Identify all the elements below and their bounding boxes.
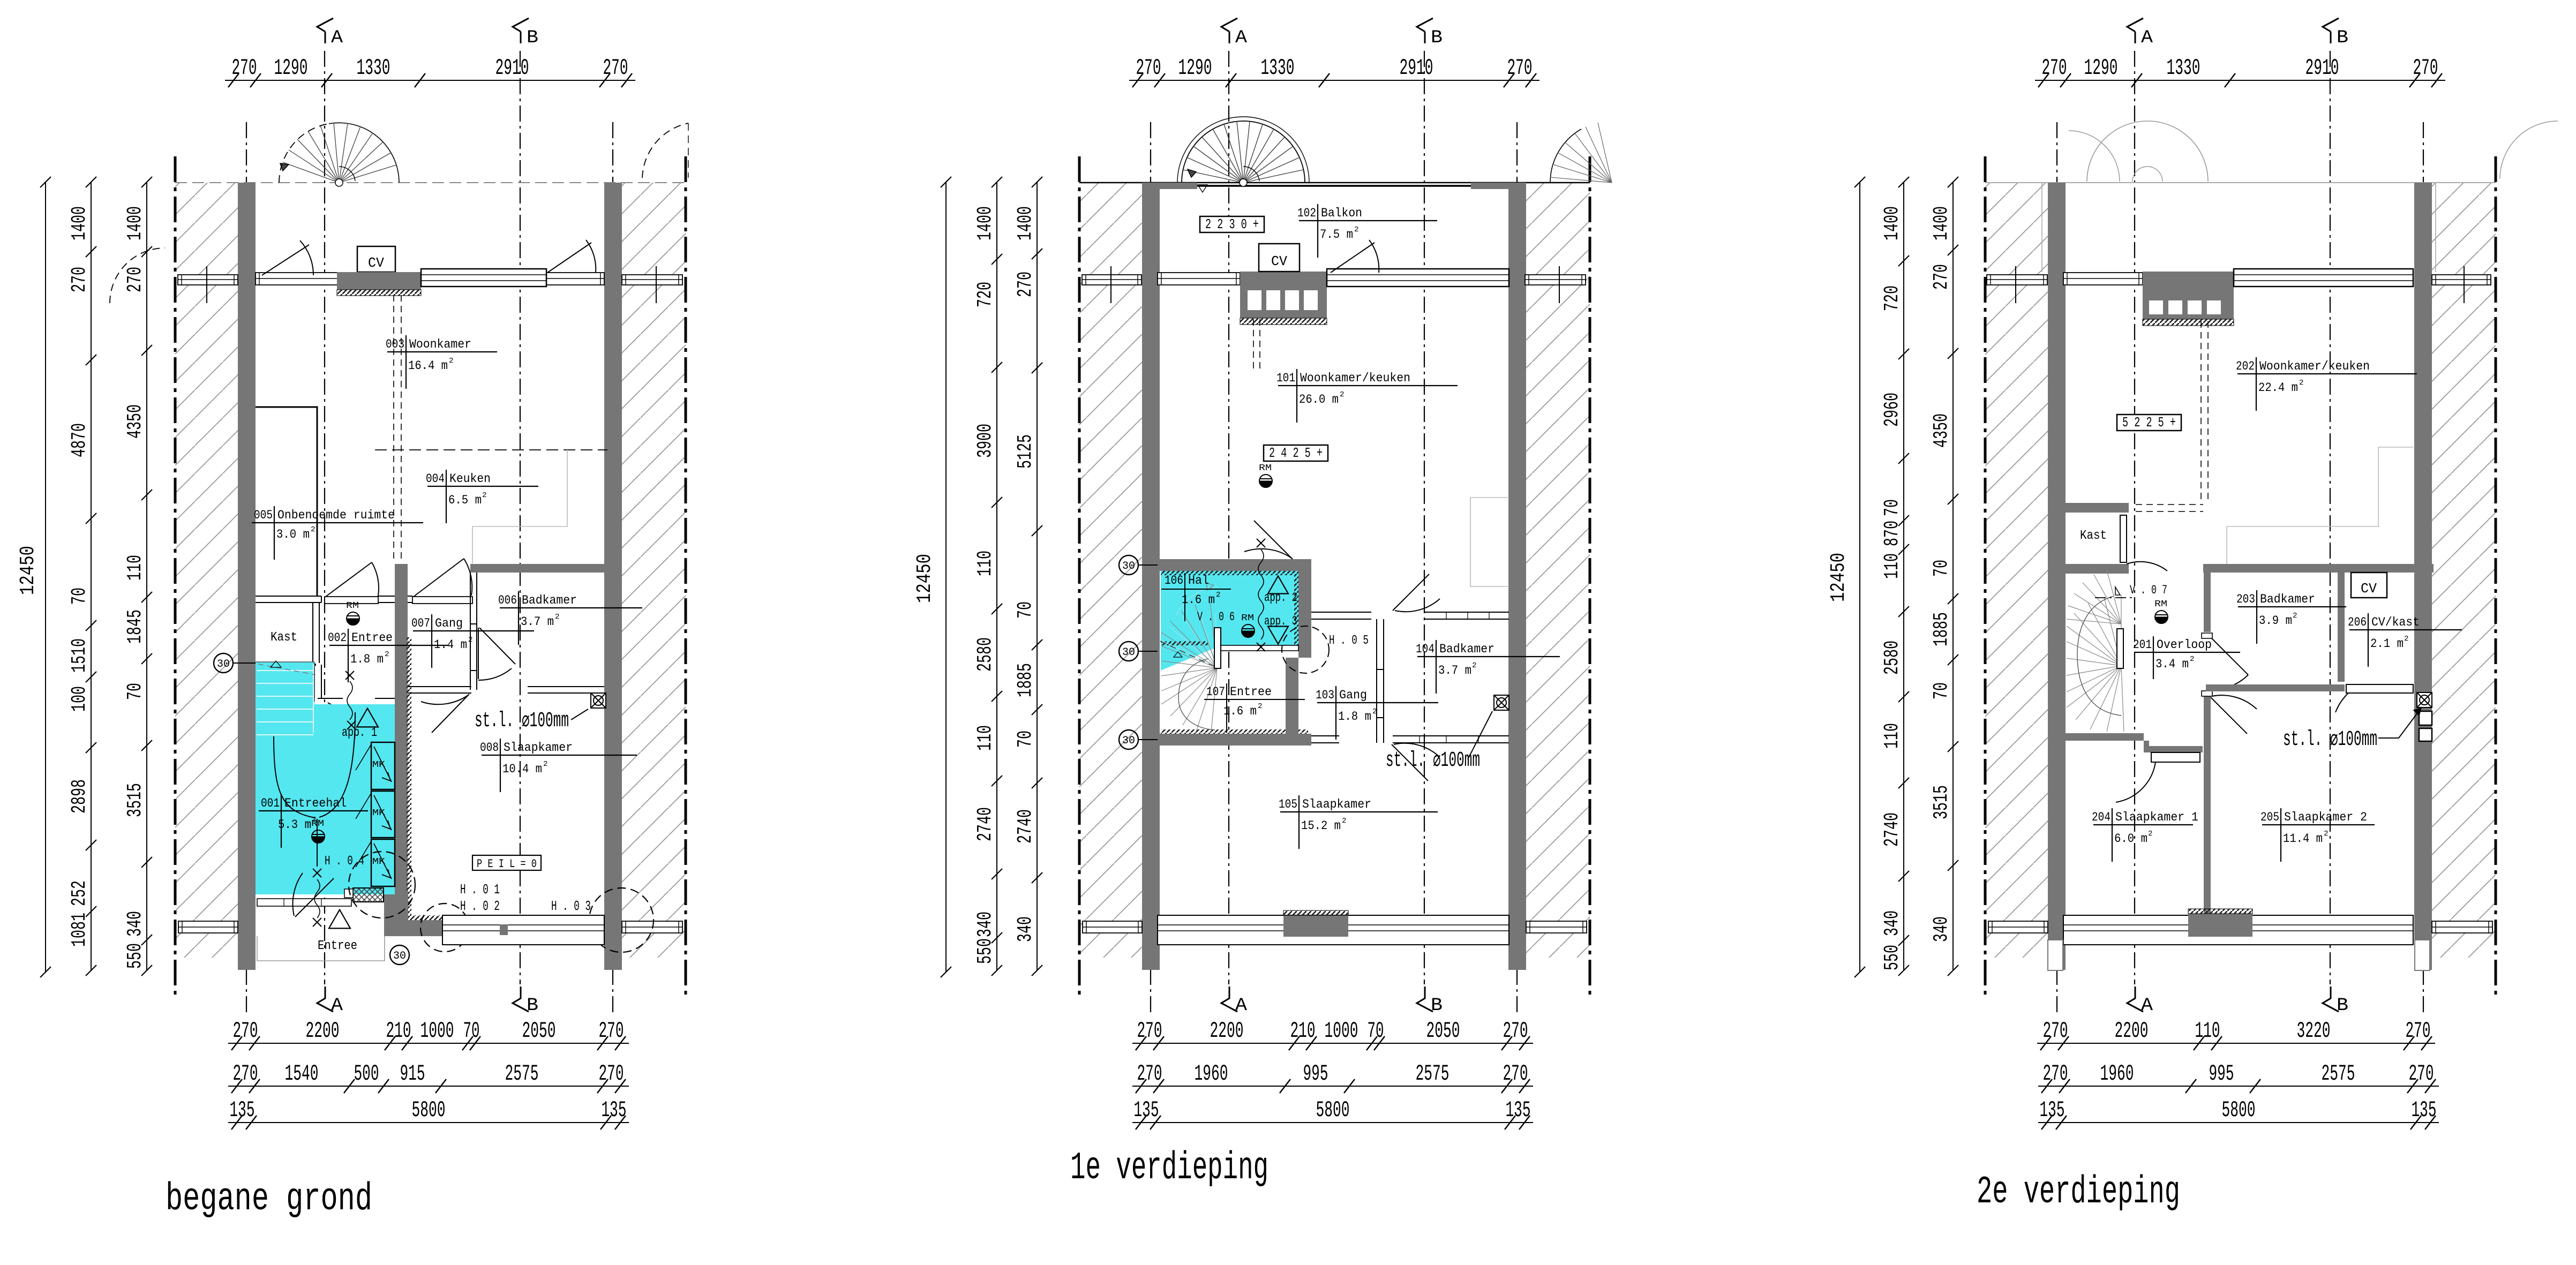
svg-text:2.1 m: 2.1 m	[2370, 637, 2404, 651]
svg-text:Entreehal: Entreehal	[284, 796, 347, 810]
svg-text:CV/kast: CV/kast	[2371, 615, 2420, 629]
svg-text:Kast: Kast	[271, 630, 297, 645]
svg-text:100: 100	[68, 686, 91, 712]
svg-text:3515: 3515	[1930, 785, 1953, 819]
svg-text:2200: 2200	[1210, 1018, 1244, 1044]
svg-text:2575: 2575	[1416, 1061, 1450, 1087]
svg-text:915: 915	[400, 1061, 425, 1087]
svg-text:26.0 m: 26.0 m	[1299, 393, 1339, 406]
svg-text:1510: 1510	[68, 638, 91, 673]
svg-text:135: 135	[1134, 1097, 1159, 1123]
svg-text:Gang: Gang	[435, 616, 463, 630]
svg-text:1330: 1330	[1261, 55, 1295, 81]
svg-text:2: 2	[468, 636, 473, 644]
svg-text:2: 2	[543, 760, 548, 769]
svg-text:995: 995	[1303, 1061, 1328, 1087]
svg-text:006: 006	[498, 593, 517, 607]
svg-text:H . 0 3: H . 0 3	[551, 898, 591, 914]
svg-text:720: 720	[1881, 285, 1904, 311]
svg-text:A: A	[331, 996, 343, 1016]
svg-text:RM: RM	[346, 601, 359, 611]
svg-text:2: 2	[1340, 390, 1345, 399]
svg-text:5 2 2 5 +: 5 2 2 5 +	[2122, 415, 2176, 431]
svg-text:Hal: Hal	[1188, 574, 1209, 588]
svg-text:007: 007	[411, 616, 430, 630]
svg-text:1540: 1540	[285, 1061, 319, 1087]
svg-text:1845: 1845	[124, 609, 147, 644]
svg-text:110: 110	[2195, 1018, 2220, 1044]
svg-text:2: 2	[1258, 702, 1263, 711]
svg-text:V . 0 6: V . 0 6	[1197, 610, 1235, 624]
svg-text:1960: 1960	[2100, 1061, 2134, 1087]
svg-text:202: 202	[2236, 359, 2255, 373]
svg-text:270: 270	[124, 267, 147, 292]
svg-text:B: B	[1431, 996, 1443, 1016]
svg-text:2: 2	[2190, 655, 2195, 664]
svg-text:B: B	[527, 28, 538, 48]
svg-text:Slaapkamer 2: Slaapkamer 2	[2284, 810, 2367, 824]
svg-text:RM: RM	[311, 819, 324, 829]
svg-text:Keuken: Keuken	[449, 472, 491, 486]
svg-text:270: 270	[232, 55, 257, 81]
svg-text:2: 2	[1372, 707, 1377, 716]
svg-text:10.4 m: 10.4 m	[502, 762, 542, 776]
svg-text:270: 270	[2406, 1018, 2431, 1044]
svg-text:270: 270	[233, 1018, 258, 1044]
svg-text:Gang: Gang	[1339, 688, 1367, 702]
svg-text:110: 110	[1881, 553, 1904, 579]
svg-text:340: 340	[1014, 916, 1037, 942]
svg-text:2910: 2910	[1400, 55, 1433, 81]
svg-text:30: 30	[1122, 560, 1135, 573]
svg-text:4350: 4350	[124, 404, 147, 439]
svg-text:70: 70	[1881, 499, 1904, 516]
svg-text:2: 2	[311, 525, 316, 534]
svg-text:3.7 m: 3.7 m	[521, 615, 554, 629]
svg-text:210: 210	[386, 1018, 411, 1044]
svg-text:2: 2	[385, 650, 389, 659]
svg-text:Kast: Kast	[2080, 529, 2107, 543]
svg-text:270: 270	[603, 55, 628, 81]
svg-text:5800: 5800	[1316, 1097, 1350, 1123]
svg-text:870: 870	[1881, 521, 1904, 546]
svg-text:70: 70	[463, 1018, 480, 1044]
svg-text:2960: 2960	[1881, 393, 1904, 427]
svg-text:270: 270	[1136, 55, 1161, 81]
svg-text:Onbenoemde ruimte: Onbenoemde ruimte	[277, 508, 395, 522]
svg-text:2 2 3 0 +: 2 2 3 0 +	[1205, 216, 1259, 232]
svg-text:5800: 5800	[412, 1097, 446, 1123]
svg-text:2: 2	[449, 357, 454, 365]
svg-text:270: 270	[2042, 55, 2067, 81]
svg-text:Woonkamer/keuken: Woonkamer/keuken	[2259, 359, 2370, 373]
svg-text:Woonkamer: Woonkamer	[409, 337, 471, 351]
svg-text:270: 270	[1507, 55, 1533, 81]
svg-text:005: 005	[254, 508, 273, 522]
svg-text:RM: RM	[2154, 599, 2167, 609]
svg-text:1400: 1400	[124, 206, 147, 240]
svg-text:6.5 m: 6.5 m	[448, 493, 482, 507]
svg-text:270: 270	[1503, 1061, 1528, 1087]
svg-text:101: 101	[1276, 371, 1295, 385]
svg-text:5800: 5800	[2222, 1097, 2256, 1123]
svg-text:205: 205	[2260, 810, 2279, 824]
svg-text:107: 107	[1206, 685, 1225, 699]
svg-text:1400: 1400	[1881, 206, 1904, 240]
svg-text:550: 550	[974, 938, 997, 964]
svg-text:1330: 1330	[2167, 55, 2201, 81]
svg-text:70: 70	[1014, 731, 1037, 748]
svg-text:2: 2	[2299, 379, 2304, 387]
svg-text:4350: 4350	[1930, 413, 1953, 448]
svg-text:5.3 m: 5.3 m	[278, 818, 311, 832]
svg-text:995: 995	[2209, 1061, 2234, 1087]
svg-text:2: 2	[2293, 612, 2297, 620]
svg-text:1885: 1885	[1930, 612, 1953, 646]
svg-text:2: 2	[1216, 591, 1221, 599]
svg-text:135: 135	[2412, 1097, 2437, 1123]
svg-text:340: 340	[974, 912, 997, 937]
svg-text:2740: 2740	[1881, 812, 1904, 847]
svg-text:H . 0 2: H . 0 2	[460, 898, 500, 914]
svg-text:203: 203	[2236, 592, 2255, 606]
svg-text:70: 70	[1930, 682, 1953, 699]
svg-text:2740: 2740	[1014, 809, 1037, 844]
svg-text:H . 0 5: H . 0 5	[1329, 634, 1369, 648]
svg-text:5125: 5125	[1014, 434, 1037, 469]
svg-text:15.2 m: 15.2 m	[1301, 819, 1341, 833]
svg-text:2050: 2050	[1426, 1018, 1460, 1044]
svg-text:Badkamer: Badkamer	[522, 593, 577, 607]
svg-text:V . 0 7: V . 0 7	[2130, 583, 2167, 597]
svg-text:4870: 4870	[68, 423, 91, 457]
svg-text:A: A	[1235, 28, 1248, 48]
svg-text:1.6 m: 1.6 m	[1223, 704, 1257, 718]
svg-text:2910: 2910	[2305, 55, 2339, 81]
svg-text:Woonkamer/keuken: Woonkamer/keuken	[1300, 371, 1410, 385]
svg-text:st.l. ⌀100mm: st.l. ⌀100mm	[475, 709, 569, 733]
svg-text:2: 2	[1354, 225, 1359, 234]
svg-text:110: 110	[974, 551, 997, 576]
svg-text:270: 270	[2409, 1061, 2434, 1087]
svg-text:110: 110	[1881, 723, 1904, 749]
svg-text:1400: 1400	[1930, 206, 1953, 240]
svg-text:A: A	[1235, 996, 1248, 1016]
svg-text:340: 340	[1930, 916, 1953, 942]
svg-text:2910: 2910	[495, 55, 529, 81]
svg-text:2: 2	[2324, 830, 2329, 838]
svg-text:008: 008	[480, 741, 499, 755]
svg-text:2898: 2898	[68, 779, 91, 814]
svg-text:270: 270	[1014, 272, 1037, 297]
svg-text:1081: 1081	[68, 913, 91, 947]
svg-text:270: 270	[2413, 55, 2438, 81]
svg-text:11.4 m: 11.4 m	[2283, 832, 2323, 846]
svg-text:252: 252	[68, 880, 91, 906]
svg-text:CV: CV	[368, 255, 384, 271]
svg-text:270: 270	[1930, 264, 1953, 290]
svg-text:2: 2	[482, 491, 487, 500]
svg-text:340: 340	[124, 911, 147, 937]
svg-text:1.8 m: 1.8 m	[1338, 710, 1371, 724]
svg-text:1000: 1000	[1325, 1018, 1358, 1044]
svg-text:1290: 1290	[274, 55, 308, 81]
svg-text:2575: 2575	[2322, 1061, 2355, 1087]
svg-text:104: 104	[1416, 642, 1435, 656]
svg-text:30: 30	[1122, 735, 1135, 747]
svg-text:1000: 1000	[420, 1018, 454, 1044]
svg-text:Overloop: Overloop	[2157, 638, 2212, 652]
svg-text:st.l. ⌀100mm: st.l. ⌀100mm	[1386, 749, 1480, 773]
svg-text:3220: 3220	[2297, 1018, 2331, 1044]
svg-text:1.8 m: 1.8 m	[350, 652, 384, 666]
svg-text:1290: 1290	[1178, 55, 1212, 81]
svg-text:1290: 1290	[2084, 55, 2118, 81]
svg-text:12450: 12450	[17, 546, 40, 595]
svg-text:103: 103	[1316, 688, 1334, 702]
svg-text:Entree: Entree	[318, 939, 357, 953]
svg-text:1960: 1960	[1195, 1061, 1228, 1087]
svg-text:720: 720	[974, 282, 997, 307]
svg-text:3.7 m: 3.7 m	[1438, 664, 1471, 677]
svg-text:2200: 2200	[2115, 1018, 2149, 1044]
svg-text:70: 70	[1014, 601, 1037, 619]
svg-text:004: 004	[426, 472, 445, 486]
svg-text:1400: 1400	[68, 206, 91, 240]
svg-text:340: 340	[1881, 910, 1904, 936]
svg-text:270: 270	[1137, 1061, 1162, 1087]
svg-text:2580: 2580	[974, 637, 997, 672]
svg-text:2200: 2200	[306, 1018, 340, 1044]
svg-text:B: B	[2337, 28, 2348, 48]
svg-text:2580: 2580	[1881, 641, 1904, 675]
svg-text:270: 270	[2043, 1061, 2068, 1087]
svg-text:22.4 m: 22.4 m	[2258, 381, 2298, 395]
svg-text:6.0 m: 6.0 m	[2114, 832, 2147, 846]
svg-text:70: 70	[1368, 1018, 1384, 1044]
svg-text:2: 2	[2404, 635, 2409, 643]
svg-text:2575: 2575	[505, 1061, 539, 1087]
svg-text:30: 30	[393, 950, 406, 962]
svg-text:201: 201	[2133, 638, 2152, 652]
svg-text:3515: 3515	[124, 783, 147, 817]
svg-text:A: A	[2141, 28, 2153, 48]
svg-text:begane grond: begane grond	[166, 1177, 372, 1221]
svg-text:2: 2	[2148, 830, 2153, 838]
svg-text:002: 002	[328, 631, 347, 645]
svg-text:1400: 1400	[1014, 206, 1037, 240]
svg-text:7.5 m: 7.5 m	[1320, 228, 1353, 242]
svg-text:H . 0 4: H . 0 4	[325, 854, 364, 869]
svg-text:RM: RM	[1259, 463, 1272, 473]
svg-text:Slaapkamer: Slaapkamer	[504, 741, 573, 755]
svg-text:A: A	[331, 28, 343, 48]
svg-text:Slaapkamer: Slaapkamer	[1302, 797, 1371, 811]
svg-text:106: 106	[1165, 574, 1183, 588]
svg-text:16.4 m: 16.4 m	[408, 359, 448, 373]
svg-text:CV: CV	[1271, 253, 1287, 269]
svg-text:CV: CV	[2361, 581, 2377, 597]
svg-text:P E I L = 0: P E I L = 0	[477, 857, 537, 871]
svg-text:135: 135	[230, 1097, 255, 1123]
svg-text:B: B	[2337, 996, 2348, 1016]
svg-text:270: 270	[599, 1061, 624, 1087]
svg-text:1330: 1330	[357, 55, 390, 81]
svg-text:12450: 12450	[1827, 553, 1850, 602]
svg-text:Entree: Entree	[1230, 685, 1272, 699]
svg-text:70: 70	[1930, 560, 1953, 577]
svg-text:2: 2	[1472, 661, 1477, 670]
svg-text:2740: 2740	[974, 807, 997, 841]
svg-text:3.0 m: 3.0 m	[276, 528, 310, 541]
svg-text:Badkamer: Badkamer	[1439, 642, 1494, 656]
svg-text:RM: RM	[1241, 613, 1254, 623]
svg-text:270: 270	[1137, 1018, 1162, 1044]
svg-text:Entree: Entree	[351, 631, 393, 645]
svg-text:135: 135	[2040, 1097, 2065, 1123]
svg-text:1885: 1885	[1014, 663, 1037, 697]
svg-text:30: 30	[217, 658, 230, 671]
svg-text:001: 001	[261, 796, 280, 810]
svg-text:app. 2: app. 2	[1264, 591, 1297, 605]
svg-text:2: 2	[555, 613, 560, 621]
svg-text:app. 1: app. 1	[342, 726, 377, 740]
svg-text:12450: 12450	[913, 554, 936, 603]
svg-text:2050: 2050	[522, 1018, 556, 1044]
svg-text:550: 550	[1881, 945, 1904, 970]
svg-text:270: 270	[233, 1061, 258, 1087]
svg-text:B: B	[527, 996, 538, 1016]
svg-text:135: 135	[1506, 1097, 1531, 1123]
svg-text:1400: 1400	[974, 206, 997, 240]
svg-text:Balkon: Balkon	[1321, 206, 1362, 220]
svg-text:3.4 m: 3.4 m	[2156, 657, 2189, 671]
svg-text:A: A	[2141, 996, 2153, 1016]
svg-text:110: 110	[974, 725, 997, 751]
svg-text:B: B	[1431, 28, 1443, 48]
svg-text:Slaapkamer 1: Slaapkamer 1	[2115, 810, 2198, 824]
svg-text:206: 206	[2348, 615, 2367, 629]
svg-text:102: 102	[1297, 206, 1316, 220]
svg-text:270: 270	[68, 267, 91, 292]
svg-text:105: 105	[1279, 797, 1297, 811]
svg-text:1.6 m: 1.6 m	[1182, 593, 1215, 607]
svg-text:MK: MK	[372, 760, 386, 770]
svg-text:30: 30	[1122, 646, 1135, 659]
svg-text:270: 270	[2043, 1018, 2068, 1044]
svg-text:70: 70	[124, 683, 147, 700]
svg-text:H . 0 1: H . 0 1	[460, 882, 500, 898]
svg-text:110: 110	[124, 555, 147, 581]
svg-text:204: 204	[2092, 810, 2111, 824]
svg-text:70: 70	[68, 588, 91, 605]
svg-text:2 4 2 5 +: 2 4 2 5 +	[1269, 445, 1323, 461]
svg-text:MK: MK	[372, 808, 386, 818]
svg-text:135: 135	[602, 1097, 627, 1123]
svg-text:3.9 m: 3.9 m	[2259, 614, 2292, 628]
svg-text:270: 270	[599, 1018, 624, 1044]
svg-text:MK: MK	[372, 857, 386, 867]
svg-text:3900: 3900	[974, 424, 997, 458]
svg-text:500: 500	[354, 1061, 379, 1087]
svg-text:st.l. ⌀100mm: st.l. ⌀100mm	[2283, 728, 2377, 752]
svg-text:1e verdieping: 1e verdieping	[1070, 1146, 1268, 1190]
svg-text:210: 210	[1290, 1018, 1316, 1044]
svg-text:270: 270	[1503, 1018, 1528, 1044]
svg-text:2: 2	[1342, 817, 1347, 825]
svg-text:Badkamer: Badkamer	[2260, 592, 2315, 606]
svg-text:550: 550	[124, 943, 147, 969]
svg-text:2e verdieping: 2e verdieping	[1977, 1170, 2180, 1214]
svg-text:1.4 m: 1.4 m	[434, 638, 467, 652]
